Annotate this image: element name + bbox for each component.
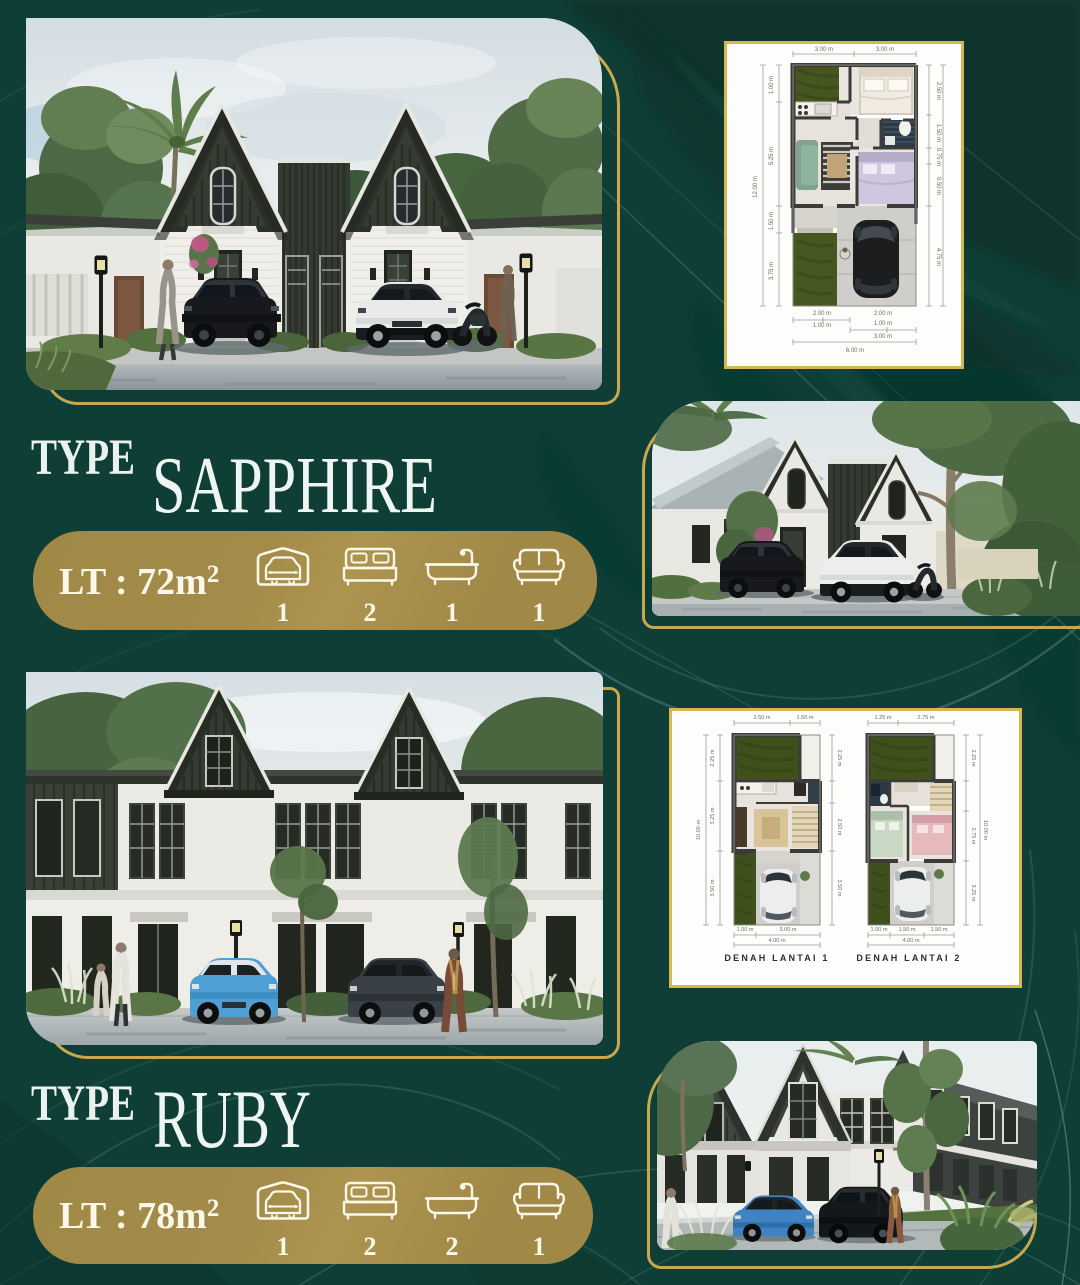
svg-text:2.25 m: 2.25 m: [710, 749, 716, 766]
svg-text:2.25 m: 2.25 m: [836, 749, 842, 766]
svg-text:3.25 m: 3.25 m: [710, 807, 716, 824]
svg-text:2.00 m: 2.00 m: [874, 311, 892, 317]
svg-text:1.50 m: 1.50 m: [796, 715, 813, 721]
svg-text:2: 2: [364, 598, 377, 626]
svg-text:3.75 m: 3.75 m: [769, 262, 775, 280]
svg-text:10.00 m: 10.00 m: [696, 820, 702, 841]
svg-text:2: 2: [364, 1232, 377, 1260]
svg-text:3.50 m: 3.50 m: [836, 879, 842, 896]
svg-text:1.25 m: 1.25 m: [874, 715, 891, 721]
svg-text:3.25 m: 3.25 m: [970, 884, 976, 901]
svg-text:1.00 m: 1.00 m: [736, 927, 753, 933]
svg-text:4.00 m: 4.00 m: [768, 938, 785, 944]
svg-text:4.75 m: 4.75 m: [935, 248, 941, 266]
svg-text:1: 1: [277, 598, 290, 626]
svg-text:2.75 m: 2.75 m: [917, 715, 934, 721]
svg-text:1.50 m: 1.50 m: [769, 212, 775, 230]
svg-text:6.00 m: 6.00 m: [846, 348, 864, 354]
svg-text:3.00 m: 3.00 m: [874, 334, 892, 340]
svg-text:2.50 m: 2.50 m: [753, 715, 770, 721]
svg-text:DENAH LANTAI 2: DENAH LANTAI 2: [856, 953, 961, 963]
svg-text:4.00 m: 4.00 m: [902, 938, 919, 944]
svg-text:1: 1: [533, 1232, 546, 1260]
svg-text:2.50 m: 2.50 m: [836, 818, 842, 835]
svg-text:1.00 m: 1.00 m: [874, 321, 892, 327]
svg-text:3.00 m: 3.00 m: [876, 47, 894, 53]
svg-text:DENAH LANTAI 1: DENAH LANTAI 1: [724, 953, 829, 963]
svg-text:2.25 m: 2.25 m: [970, 749, 976, 766]
svg-text:3.50 m: 3.50 m: [710, 879, 716, 896]
svg-text:2.00 m: 2.00 m: [813, 311, 831, 317]
svg-text:0.50 m: 0.50 m: [935, 177, 941, 195]
svg-text:10.00 m: 10.00 m: [982, 820, 988, 841]
svg-text:2: 2: [446, 1232, 459, 1260]
svg-text:1.50 m: 1.50 m: [898, 927, 915, 933]
svg-text:1.50 m: 1.50 m: [935, 124, 941, 142]
svg-text:1.00 m: 1.00 m: [870, 927, 887, 933]
svg-text:5.25 m: 5.25 m: [769, 147, 775, 165]
svg-text:2.75 m: 2.75 m: [970, 827, 976, 844]
svg-text:12.00 m: 12.00 m: [753, 176, 759, 198]
svg-text:0.75 m: 0.75 m: [935, 148, 941, 166]
svg-text:1: 1: [446, 598, 459, 626]
svg-text:1.50 m: 1.50 m: [930, 927, 947, 933]
svg-text:1: 1: [277, 1232, 290, 1260]
svg-text:3.00 m: 3.00 m: [779, 927, 796, 933]
svg-text:3.00 m: 3.00 m: [815, 47, 833, 53]
svg-text:1: 1: [533, 598, 546, 626]
svg-text:1.00 m: 1.00 m: [769, 76, 775, 94]
svg-text:2.50 m: 2.50 m: [935, 82, 941, 100]
svg-text:1.00 m: 1.00 m: [813, 323, 831, 329]
